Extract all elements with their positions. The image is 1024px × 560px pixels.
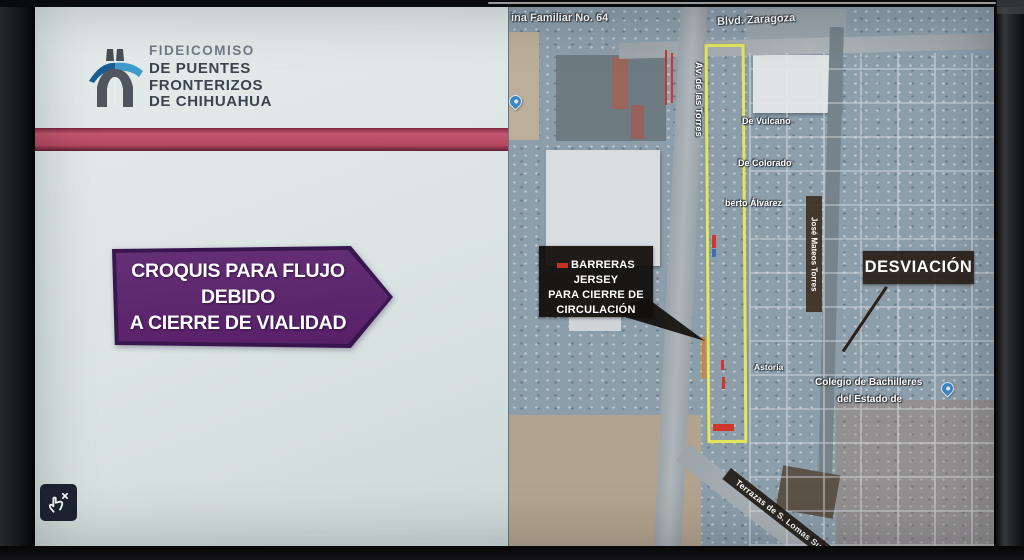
street-sign-jose-text: José Mateos Torres: [810, 217, 819, 292]
org-name: FIDEICOMISO DE PUENTES FRONTERIZOS DE CH…: [149, 43, 272, 111]
closure-mark-barrier-bar: [713, 424, 734, 431]
desviacion-callout: DESVIACIÓN: [863, 251, 974, 284]
slide-title-line2: A CIERRE DE VIALIDAD: [130, 310, 346, 336]
monitor-bezel-right: [994, 0, 1024, 560]
closure-mark-dash-2: [722, 377, 725, 389]
photographed-screen: FIDEICOMISO DE PUENTES FRONTERIZOS DE CH…: [0, 0, 1024, 560]
org-name-line1: FIDEICOMISO: [149, 43, 272, 58]
street-label-de-vulcano: De Vulcano: [742, 116, 791, 126]
red-roof-building-1: [612, 57, 628, 109]
slide-panel: FIDEICOMISO DE PUENTES FRONTERIZOS DE CH…: [35, 7, 508, 546]
hand-icon-box: [40, 484, 77, 521]
closure-mark-north-1: [665, 50, 667, 105]
touch-hand-icon: [46, 490, 72, 516]
poi-label-colegio-line1: Colegio de Bachilleres: [815, 377, 922, 388]
street-sign-jose-mateos-torres: José Mateos Torres: [806, 196, 822, 312]
slide-title-line1: CROQUIS PARA FLUJO DEBIDO: [118, 258, 358, 310]
closure-mark-mid-blue: [712, 249, 716, 257]
street-label-de-colorado: De Colorado: [738, 158, 792, 168]
red-roof-building-2: [631, 105, 644, 139]
red-barrier-icon: [557, 263, 568, 268]
org-name-line4: DE CHIHUAHUA: [149, 94, 272, 111]
monitor-edge-highlight: [488, 2, 996, 4]
barreras-callout: BARRERAS JERSEY PARA CIERRE DE CIRCULACI…: [539, 246, 653, 317]
parking-lot-west: [556, 55, 666, 141]
barreras-line3: CIRCULACIÓN: [539, 303, 653, 318]
closure-mark-dash-1: [721, 360, 724, 370]
bezel-reflection: [997, 0, 1024, 14]
org-name-line2: DE PUENTES: [149, 61, 272, 78]
screen: FIDEICOMISO DE PUENTES FRONTERIZOS DE CH…: [35, 7, 994, 546]
street-label-familiar: ina Familiar No. 64: [511, 12, 608, 24]
bridge-logo-icon: [87, 47, 145, 109]
dirt-area-left: [509, 32, 539, 140]
slide-title: CROQUIS PARA FLUJO DEBIDO A CIERRE DE VI…: [118, 246, 358, 348]
accent-bar: [35, 128, 508, 151]
map-panel: ina Familiar No. 64 Blvd. Zaragoza Av. d…: [508, 7, 994, 546]
title-banner: CROQUIS PARA FLUJO DEBIDO A CIERRE DE VI…: [112, 246, 393, 348]
street-label-berto-alvarez: berto Álvarez: [725, 198, 782, 208]
barreras-line1-text: BARRERAS JERSEY: [571, 259, 635, 286]
org-name-line3: FRONTERIZOS: [149, 78, 272, 95]
poi-label-colegio-line2: del Estado de: [837, 394, 902, 405]
barreras-line1: BARRERAS JERSEY: [539, 258, 653, 288]
monitor-bezel-left: [0, 0, 35, 560]
closure-mark-north-2: [671, 53, 673, 103]
closure-mark-orange-line: [702, 337, 705, 378]
closure-mark-mid: [712, 235, 716, 248]
monitor-bezel-bottom: [0, 546, 1024, 560]
street-label-av-de-las-torres: Av. de las Torres: [693, 62, 704, 237]
barreras-line2: PARA CIERRE DE: [539, 288, 653, 303]
street-label-astoria: Astoria: [754, 362, 783, 372]
org-logo: FIDEICOMISO DE PUENTES FRONTERIZOS DE CH…: [87, 43, 417, 133]
street-grid-east: [749, 53, 994, 546]
